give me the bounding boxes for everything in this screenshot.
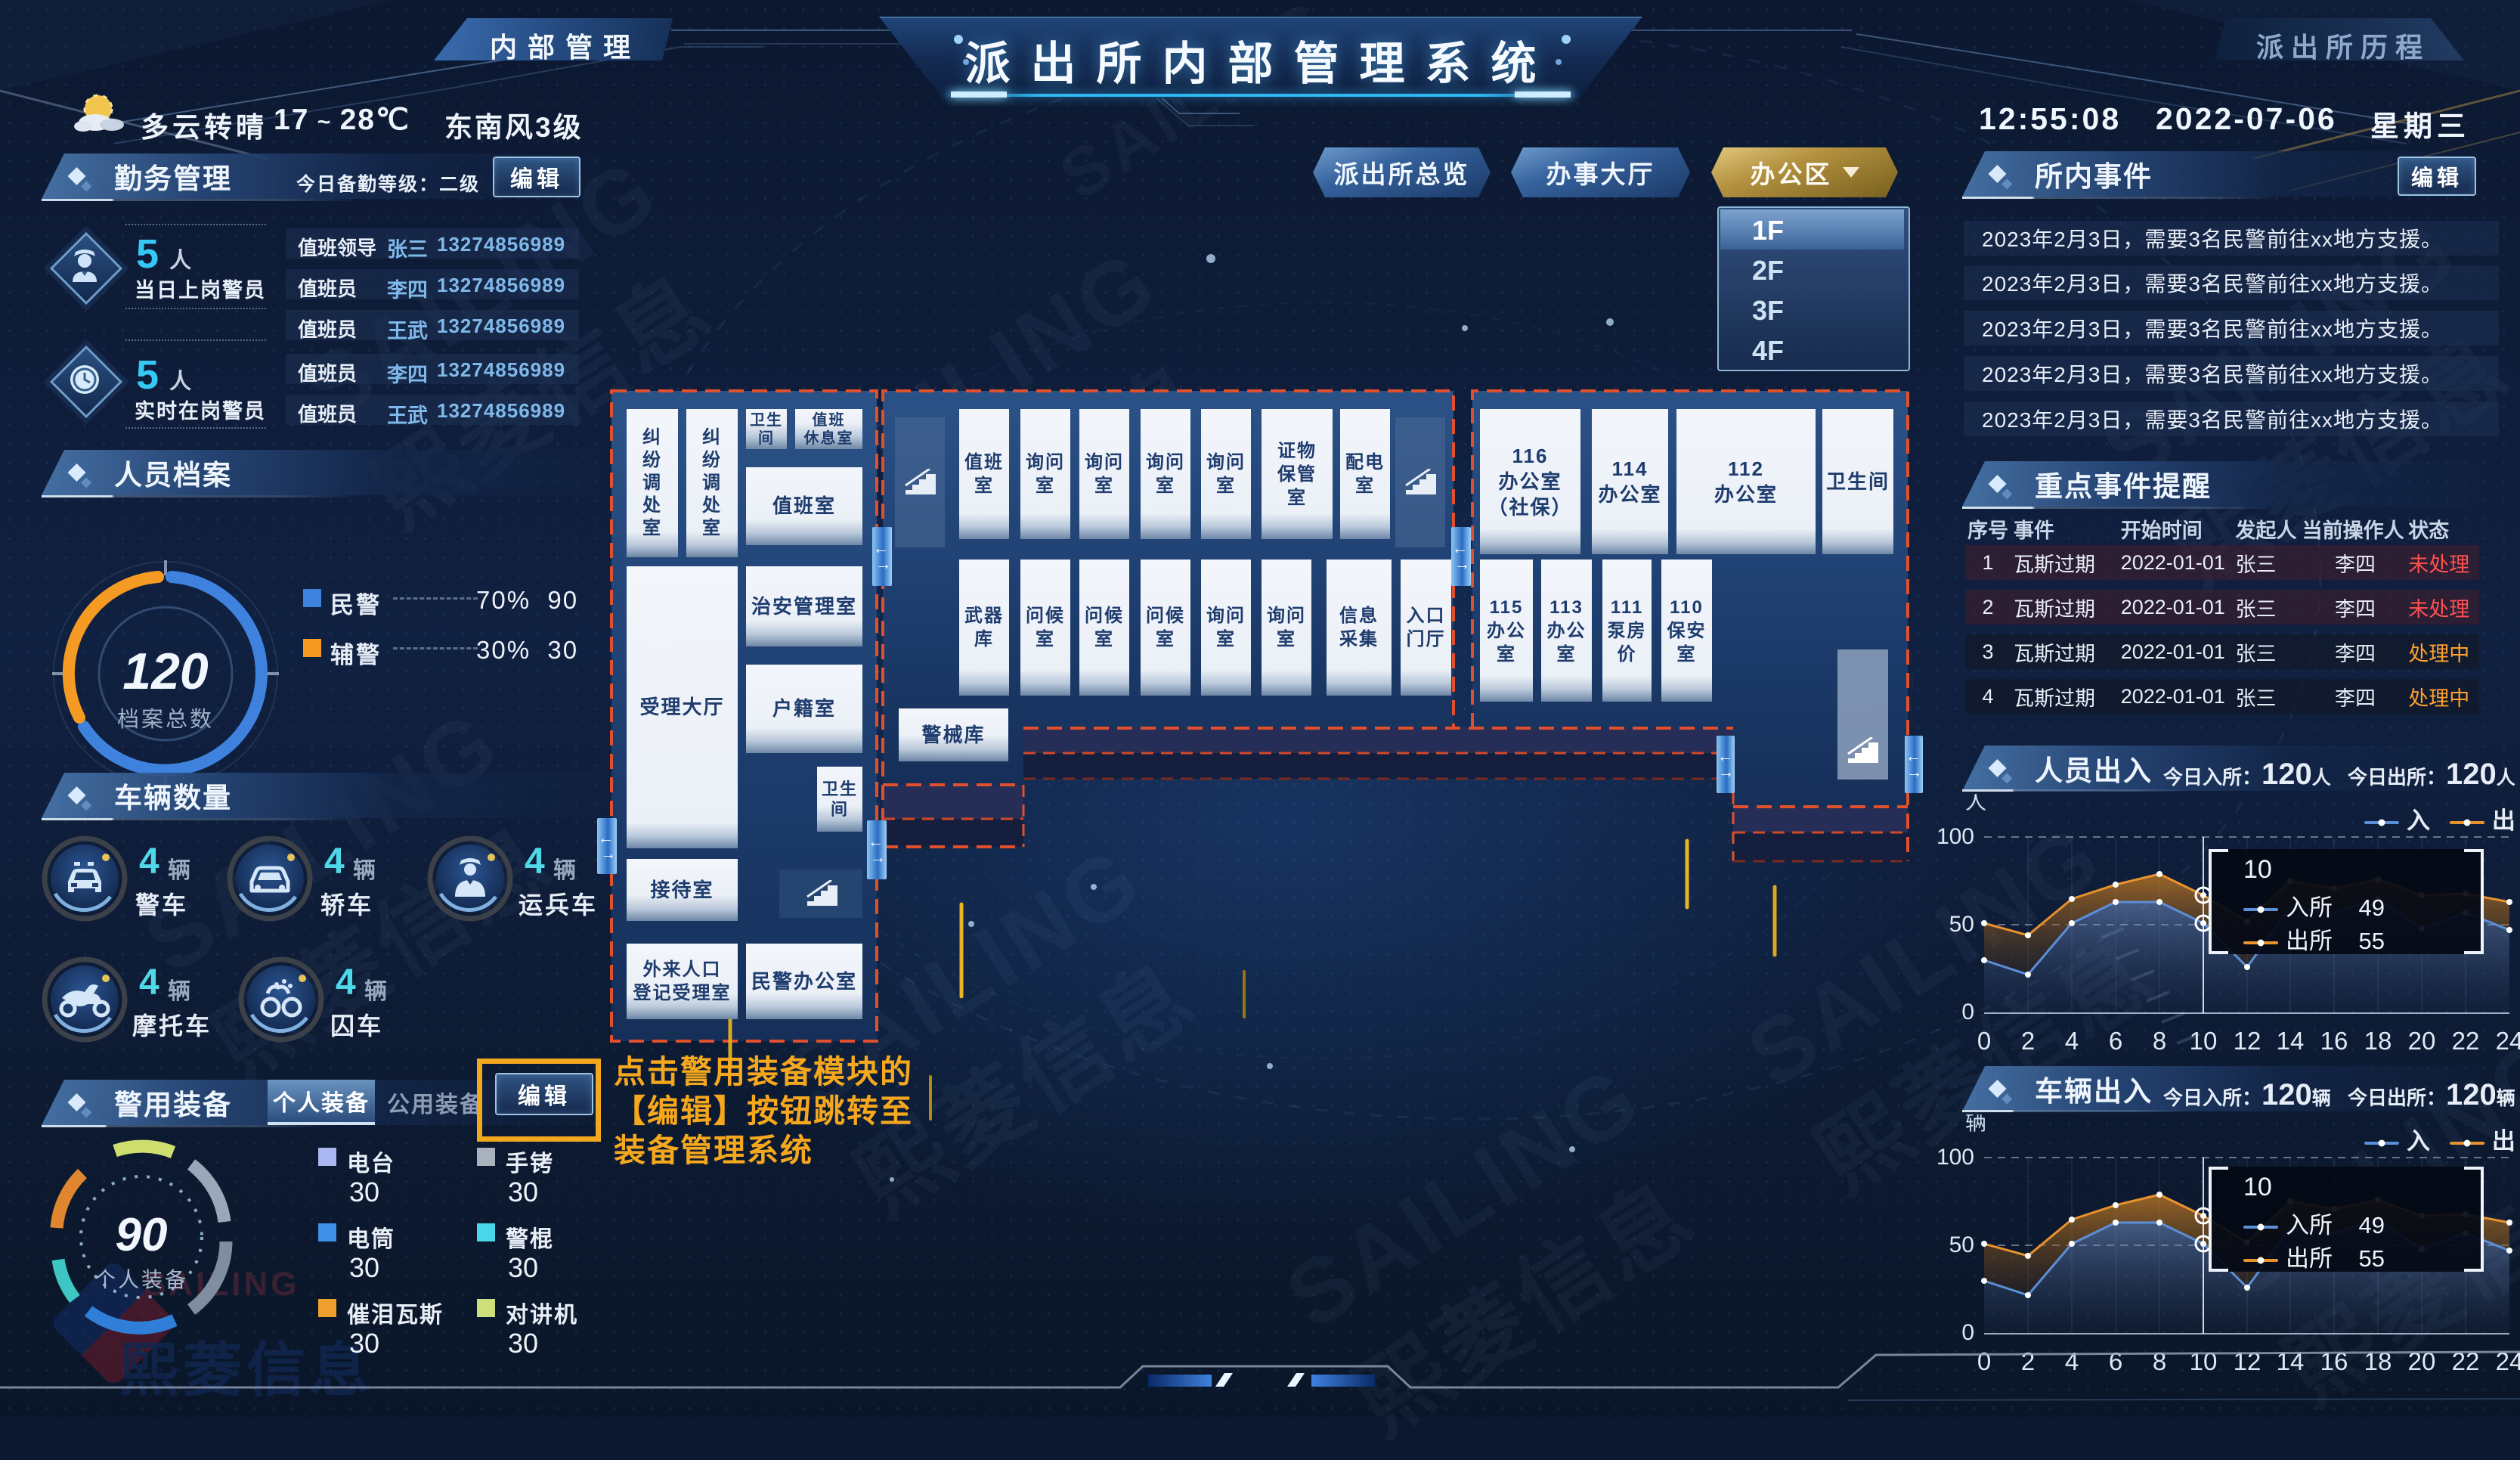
svg-text:50: 50	[1949, 1232, 1974, 1257]
svg-text:20: 20	[2408, 1027, 2436, 1055]
svg-text:18: 18	[2364, 1027, 2392, 1055]
svg-text:0: 0	[1961, 1000, 1974, 1024]
svg-text:4: 4	[2065, 1027, 2079, 1055]
svg-text:8: 8	[2153, 1027, 2166, 1055]
svg-text:100: 100	[1936, 1145, 1974, 1170]
svg-text:100: 100	[1936, 824, 1974, 849]
svg-text:辆: 辆	[1965, 1114, 1986, 1134]
svg-text:6: 6	[2109, 1027, 2122, 1055]
svg-text:24: 24	[2496, 1027, 2520, 1055]
svg-text:22: 22	[2452, 1027, 2480, 1055]
svg-text:16: 16	[2320, 1027, 2348, 1055]
svg-text:14: 14	[2277, 1027, 2305, 1055]
svg-text:人: 人	[1965, 794, 1986, 814]
svg-text:10: 10	[2190, 1027, 2218, 1055]
svg-text:50: 50	[1949, 912, 1974, 937]
svg-text:2: 2	[2021, 1027, 2035, 1055]
svg-text:0: 0	[1977, 1027, 1991, 1055]
svg-text:12: 12	[2234, 1027, 2261, 1055]
